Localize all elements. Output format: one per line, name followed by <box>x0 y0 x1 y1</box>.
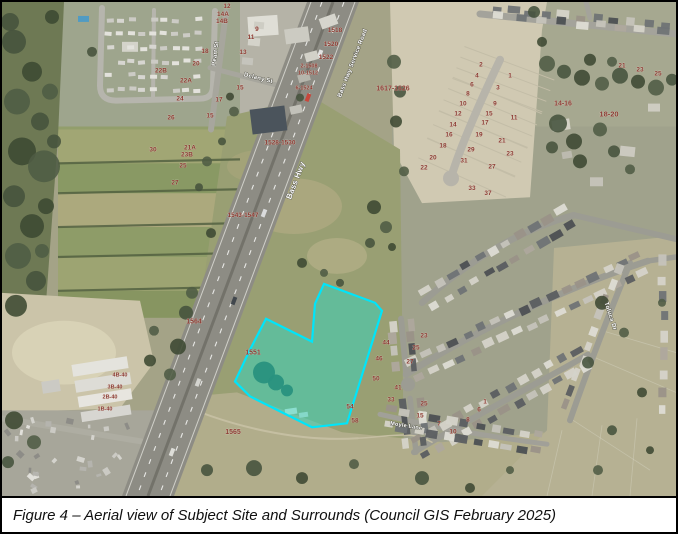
parcel-label: 14B <box>216 18 228 25</box>
parcel-label: 14-16 <box>554 101 572 108</box>
parcel-label: 21A <box>184 144 196 151</box>
parcel-label: 1518 <box>328 27 343 34</box>
parcel-label: 6 <box>477 406 481 413</box>
parcel-label: 23 <box>506 150 514 157</box>
parcel-label: 54 <box>346 403 354 410</box>
parcel-label: 1520 <box>324 41 339 48</box>
parcel-label: 25 <box>420 400 428 407</box>
parcel-label: 2B-40 <box>103 394 118 400</box>
parcel-label: 8 <box>466 416 470 423</box>
parcel-label: 33 <box>387 396 395 403</box>
parcel-label: 27 <box>171 179 179 186</box>
parcel-label: 10-1512 <box>298 71 318 77</box>
parcel-label: 6 <box>470 82 474 89</box>
parcel-label: 23 <box>636 67 644 74</box>
parcel-label: 44 <box>382 340 390 347</box>
parcel-label: 41 <box>394 384 402 391</box>
parcel-label: 22A <box>180 78 192 85</box>
parcel-label: 7 <box>437 420 441 427</box>
parcel-label: 11 <box>248 34 255 41</box>
parcel-label: 16 <box>445 131 453 138</box>
parcel-label: 24 <box>176 96 184 103</box>
parcel-label: 4B-40 <box>113 372 128 378</box>
parcel-label: 18-20 <box>599 110 618 119</box>
parcel-label: 1564 <box>186 319 202 326</box>
parcel-label: 1617-1626 <box>376 86 410 93</box>
parcel-label: 15 <box>236 85 244 92</box>
parcel-label: 10 <box>449 428 457 435</box>
parcel-label: 15 <box>416 412 424 419</box>
parcel-label: 1B-40 <box>98 406 113 412</box>
figure-container: Bass HwyBass Hwy Service RoadPeart StDel… <box>0 0 678 534</box>
parcel-label: 9 <box>493 101 497 108</box>
parcel-label: 13 <box>239 49 247 56</box>
parcel-label: 30 <box>149 146 157 153</box>
parcel-label: 17 <box>481 120 489 127</box>
parcel-label: 4 <box>475 73 479 80</box>
parcel-label: 12 <box>454 111 462 118</box>
parcel-label: 20 <box>192 61 200 68</box>
parcel-label: 25 <box>179 162 187 169</box>
parcel-label: 23B <box>181 151 193 158</box>
parcel-label: 1565 <box>225 429 241 436</box>
parcel-label: 33 <box>468 185 476 192</box>
parcel-label: 14A <box>217 11 229 18</box>
parcel-label: 17 <box>215 97 223 104</box>
parcel-label: 1 <box>483 398 487 405</box>
parcel-label: 14 <box>449 122 457 129</box>
parcel-label: 19 <box>475 131 483 138</box>
parcel-label: 21 <box>618 63 626 70</box>
parcel-label: 1528-1530 <box>265 139 296 146</box>
parcel-label: 1551 <box>245 350 261 357</box>
parcel-label: 27 <box>488 163 496 170</box>
parcel-label: 58 <box>351 417 359 424</box>
parcel-label: 3B-40 <box>108 384 123 390</box>
parcel-label: 21 <box>498 137 506 144</box>
parcel-label: 12 <box>223 3 231 10</box>
figure-caption: Figure 4 – Aerial view of Subject Site a… <box>2 496 676 532</box>
parcel-label: 18 <box>201 48 209 55</box>
parcel-label: 8 <box>466 91 470 98</box>
parcel-label: 9 <box>255 26 259 33</box>
parcel-label: 1522 <box>319 54 334 61</box>
parcel-label: 37 <box>484 190 492 197</box>
parcel-label: 22B <box>155 68 167 75</box>
figure-caption-text: Figure 4 – Aerial view of Subject Site a… <box>13 507 556 524</box>
parcel-label: 27 <box>406 359 414 366</box>
parcel-label: 20 <box>429 154 437 161</box>
parcel-label: 1543-1547 <box>228 212 259 219</box>
parcel-label: 25 <box>412 345 420 352</box>
parcel-label: 50 <box>372 375 380 382</box>
parcel-label: 2 <box>479 62 483 69</box>
parcel-label: 2-1508 <box>300 64 317 70</box>
parcel-label: 15 <box>485 111 493 118</box>
aerial-map: Bass HwyBass Hwy Service RoadPeart StDel… <box>2 2 676 496</box>
parcel-label: 23 <box>420 333 428 340</box>
parcel-label: 31 <box>460 157 468 164</box>
aerial-photo: Bass HwyBass Hwy Service RoadPeart StDel… <box>2 2 676 496</box>
parcel-label: 25 <box>654 71 662 78</box>
parcel-label: 3 <box>496 85 500 92</box>
parcel-label: 29 <box>467 146 475 153</box>
parcel-label: 22 <box>420 164 428 171</box>
parcel-label: 1 <box>508 73 512 80</box>
parcel-label: 46 <box>375 356 383 363</box>
parcel-label: 26 <box>167 115 175 122</box>
parcel-label: 11 <box>511 115 518 122</box>
parcel-label: 18 <box>439 142 447 149</box>
parcel-label: 15 <box>206 113 214 120</box>
parcel-label: 10 <box>459 101 467 108</box>
parcel-label: 6-1524 <box>295 86 313 92</box>
